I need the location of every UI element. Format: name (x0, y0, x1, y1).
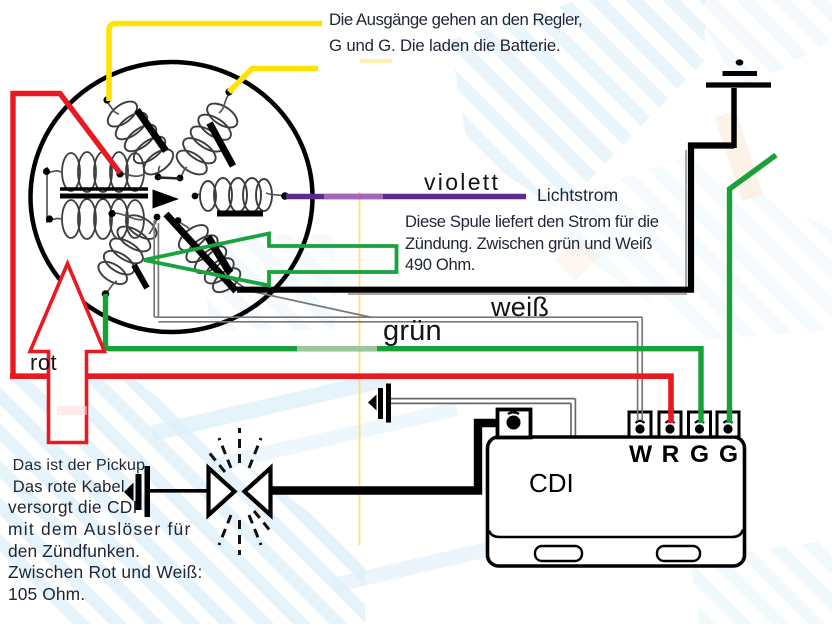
svg-text:CDI: CDI (529, 468, 574, 498)
svg-text:Lichtstrom: Lichtstrom (537, 185, 618, 205)
svg-text:Zwischen Rot und Weiß:: Zwischen Rot und Weiß: (8, 562, 203, 582)
svg-text:W: W (629, 441, 653, 468)
svg-text:105 Ohm.: 105 Ohm. (8, 584, 85, 604)
svg-text:Das ist der Pickup.: Das ist der Pickup. (8, 457, 150, 474)
svg-text:R: R (662, 441, 680, 468)
svg-text:G: G (690, 441, 709, 468)
svg-text:490 Ohm.: 490 Ohm. (405, 255, 475, 274)
svg-text:Diese Spule liefert den Strom: Diese Spule liefert den Strom für die (405, 212, 659, 231)
svg-text:mit dem Auslöser für: mit dem Auslöser für (8, 519, 192, 539)
svg-text:versorgt die CDI: versorgt die CDI (8, 497, 138, 517)
svg-text:weiß: weiß (490, 292, 549, 322)
svg-text:G und G. Die laden die Batteri: G und G. Die laden die Batterie. (329, 36, 560, 55)
svg-text:G: G (719, 441, 738, 468)
svg-text:rot: rot (30, 350, 57, 375)
svg-text:Das rote Kabel: Das rote Kabel (8, 478, 125, 496)
svg-text:Die Ausgänge gehen an den Regl: Die Ausgänge gehen an den Regler, (329, 10, 582, 29)
svg-text:violett: violett (424, 169, 500, 195)
svg-text:grün: grün (383, 315, 442, 347)
svg-text:Zündung. Zwischen grün und Wei: Zündung. Zwischen grün und Weiß (405, 234, 652, 253)
svg-text:den Zündfunken.: den Zündfunken. (8, 541, 140, 561)
